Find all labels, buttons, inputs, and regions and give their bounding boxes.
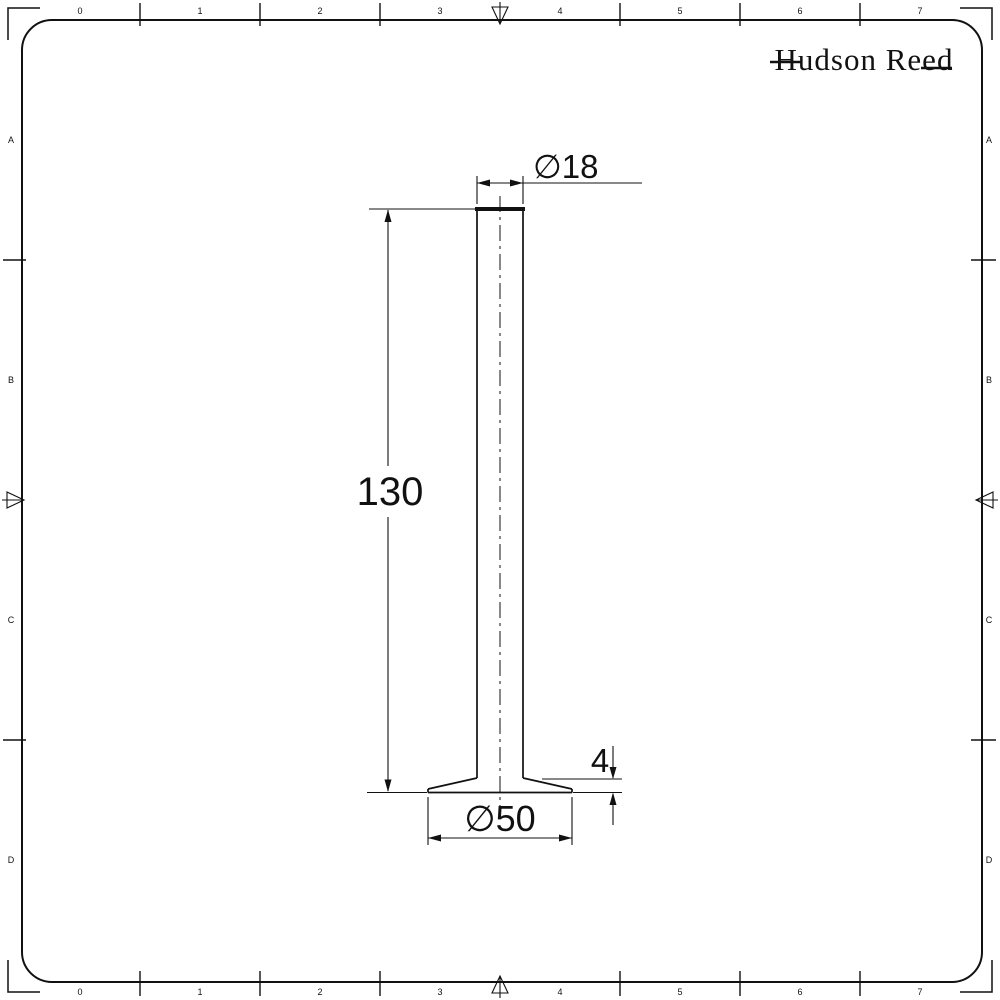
zone-label: 3: [437, 6, 442, 16]
arrowhead-icon: [510, 180, 523, 187]
dimension-value-flange-thickness: 4: [591, 742, 609, 779]
dimension-value-overall-height: 130: [357, 470, 424, 514]
zone-label: 2: [317, 987, 322, 997]
center-mark-right-icon: [976, 492, 998, 508]
arrowhead-icon: [559, 835, 572, 842]
flange-slant-left: [428, 778, 477, 789]
zone-label: 3: [437, 987, 442, 997]
dimension-top-diameter: ∅18: [477, 148, 642, 204]
zone-label: 4: [557, 6, 562, 16]
zone-label: 6: [797, 987, 802, 997]
zone-label: B: [8, 375, 14, 385]
zone-label: 6: [797, 6, 802, 16]
trim-mark-top-right: [960, 8, 992, 40]
dimension-value-base-diameter: ∅50: [464, 798, 535, 839]
zone-label: C: [8, 615, 15, 625]
center-mark-left-icon: [2, 492, 24, 508]
zone-label: D: [986, 855, 993, 865]
zone-label: 5: [677, 6, 682, 16]
dimension-flange-thickness: 4: [542, 742, 622, 825]
zone-label: C: [986, 615, 993, 625]
dimension-base-diameter: ∅50: [428, 797, 572, 845]
zone-label: 1: [197, 6, 202, 16]
dimension-value-top-diameter: ∅18: [533, 148, 598, 185]
zone-label: D: [8, 855, 15, 865]
arrowhead-icon: [428, 835, 441, 842]
zone-label: 5: [677, 987, 682, 997]
dimension-overall-height: 130: [357, 209, 475, 793]
zone-label: 7: [917, 987, 922, 997]
arrowhead-icon: [385, 780, 392, 793]
zone-label: 1: [197, 987, 202, 997]
arrowhead-icon: [385, 210, 392, 223]
part-outline: [428, 196, 572, 806]
technical-drawing-svg: 0 1 2 3 4 5 6 7 0 1 2 3 4 5 6 7 A B C D …: [0, 0, 1000, 1000]
zone-label: B: [986, 375, 992, 385]
center-mark-bottom-icon: [492, 976, 508, 998]
zone-label: 0: [77, 6, 82, 16]
arrowhead-icon: [477, 180, 490, 187]
zone-label: 2: [317, 6, 322, 16]
zone-label: A: [8, 135, 14, 145]
zone-label: 0: [77, 987, 82, 997]
zone-label: 4: [557, 987, 562, 997]
arrowhead-icon: [610, 767, 617, 779]
drawing-sheet: 0 1 2 3 4 5 6 7 0 1 2 3 4 5 6 7 A B C D …: [0, 0, 1000, 1000]
zone-label: 7: [917, 6, 922, 16]
brand-logo-text: Hudson Reed: [775, 42, 954, 77]
brand-logo: Hudson Reed: [770, 42, 953, 77]
flange-slant-right: [523, 778, 572, 789]
arrowhead-icon: [610, 793, 617, 806]
zone-label: A: [986, 135, 992, 145]
trim-mark-bottom-right: [960, 960, 992, 992]
